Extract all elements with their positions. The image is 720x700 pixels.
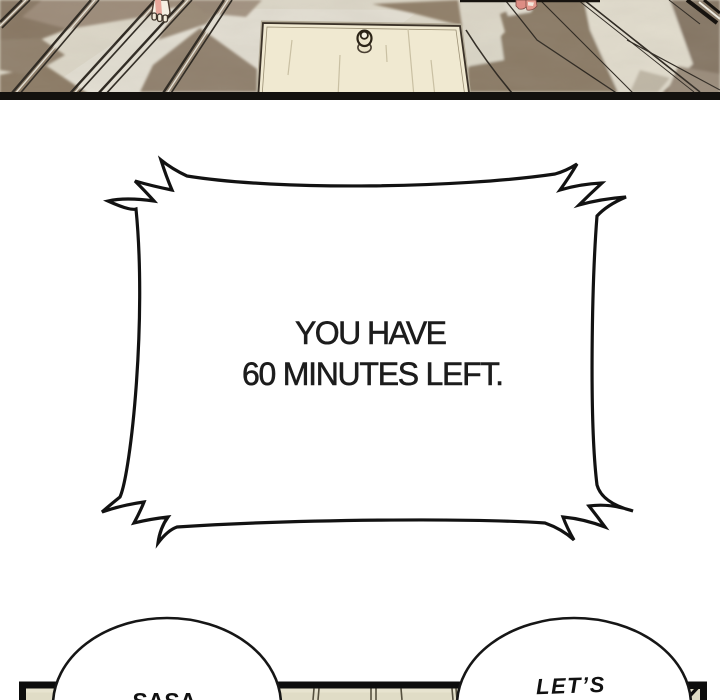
svg-text:SASA...: SASA...: [132, 688, 215, 700]
svg-text:YOU HAVE: YOU HAVE: [295, 315, 447, 351]
svg-text:LET’S: LET’S: [536, 672, 607, 699]
svg-text:60 MINUTES LEFT.: 60 MINUTES LEFT.: [242, 356, 504, 392]
